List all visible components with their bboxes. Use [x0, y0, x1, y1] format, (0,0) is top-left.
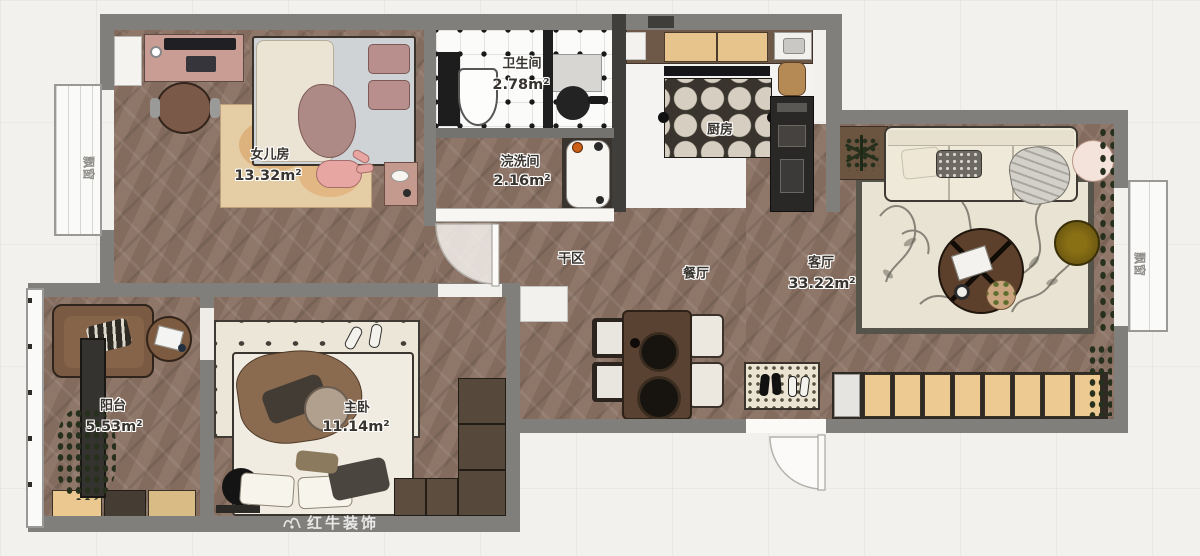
chair-cushion: [597, 322, 622, 354]
wash-basin: [556, 86, 590, 120]
kitchen-cabinet-doors: [664, 32, 768, 62]
floor-tray: [216, 505, 260, 513]
wall-bottom-right: [826, 419, 1128, 433]
room-label-living: 客厅: [808, 252, 834, 271]
table-item: [178, 344, 186, 352]
chair-armrest: [210, 98, 220, 118]
room-label-dining: 餐厅: [683, 263, 709, 282]
room-area-living: 33.22m²: [788, 276, 855, 292]
sink-basin: [783, 38, 805, 54]
mug: [150, 46, 162, 58]
wall-left-lower: [100, 230, 114, 297]
storage-cabinet: [924, 374, 951, 417]
laundry-sliding-door: [436, 208, 614, 222]
wall-top: [100, 14, 842, 30]
cabinet-divider: [716, 33, 718, 61]
chair-armrest: [150, 98, 160, 118]
bathroom-vanity: [438, 52, 460, 126]
dining-chair-right: [688, 362, 724, 408]
room-label-daughter: 女儿房: [250, 144, 289, 163]
wall-bottom-left: [28, 516, 520, 532]
balcony-door-opening: [200, 308, 214, 360]
wall-top-vent: [648, 16, 674, 28]
nightstand-item: [391, 170, 409, 182]
room-label-laundry: 浣洗间: [500, 151, 539, 170]
slipper: [788, 376, 797, 397]
bay-window-label-left: 飘窗: [81, 156, 98, 180]
lumbar-pillow: [295, 450, 339, 474]
wall-daughter-corridor: [424, 14, 436, 226]
wall-left-upper: [100, 14, 114, 90]
room-label-kitchen: 厨房: [707, 119, 733, 138]
tray: [986, 280, 1016, 310]
room-area-laundry: 2.16m²: [493, 173, 550, 189]
wall-bath-laundry: [436, 128, 614, 138]
wall-right-lower: [1114, 326, 1128, 433]
pillow: [368, 80, 410, 110]
sofa-pillow-patterned: [936, 150, 982, 178]
pouf: [1054, 220, 1100, 266]
plant: [845, 137, 879, 171]
rug-handle: [658, 112, 669, 123]
balcony-cabinet-light: [148, 490, 196, 518]
shoe: [771, 373, 782, 396]
fridge-coffee-bar: [770, 96, 814, 212]
pillow: [368, 44, 410, 74]
cabinet-divider: [425, 479, 427, 515]
low-cabinet: [394, 478, 458, 516]
storage-cabinet: [1044, 374, 1071, 417]
daughter-shelf: [114, 36, 142, 86]
slipper: [799, 376, 810, 398]
storage-cabinet: [894, 374, 921, 417]
coffee-table: [938, 228, 1024, 314]
daughter-room-door: [434, 222, 502, 290]
range-hood: [664, 66, 770, 76]
wardrobe: [458, 378, 506, 516]
hall-cabinet: [520, 286, 568, 322]
desk-chair: [156, 82, 212, 134]
balcony-window-strip: [26, 288, 44, 528]
cutting-board: [778, 62, 806, 96]
corner-plant: [1088, 344, 1112, 416]
washer-button: [596, 196, 604, 204]
monitor: [164, 38, 236, 50]
wall-right-upper: [1114, 124, 1128, 188]
wall-bottom-mid: [506, 419, 746, 433]
balcony-table: [146, 316, 192, 362]
storage-cabinet: [1014, 374, 1041, 417]
doormat: [744, 362, 820, 410]
nightstand-item: [403, 189, 411, 197]
chair-cushion: [597, 366, 622, 398]
window-plants: [1098, 126, 1114, 332]
room-area-master: 11.14m²: [322, 419, 389, 435]
wall-kitchen-living-stub: [826, 124, 840, 212]
brand-watermark: 红牛装饰: [282, 512, 379, 533]
bar-item: [777, 103, 807, 112]
washer-button: [594, 142, 603, 151]
washer-knob: [572, 142, 583, 153]
dining-chair-left: [592, 362, 626, 402]
wall-living-top: [826, 110, 1128, 124]
nightstand: [384, 162, 418, 206]
keyboard: [186, 56, 216, 72]
utility-cabinet: [834, 374, 860, 417]
storage-cabinet: [984, 374, 1011, 417]
sofa-back: [888, 130, 1074, 146]
shoe: [759, 374, 770, 397]
plant-shelf: [834, 126, 888, 180]
wall-kitchen-right: [826, 14, 842, 124]
place-setting: [639, 332, 679, 372]
room-area-daughter: 13.32m²: [234, 168, 301, 184]
wall-bath-kitchen: [612, 14, 626, 212]
wardrobe-divider: [459, 469, 505, 471]
floor-plan: 女儿房 13.32m² 卫生间 2.78m² 浣洗间 2.16m² 厨房 干区 …: [0, 0, 1200, 556]
dining-table: [622, 310, 692, 420]
bay-window-label-right: 飘窗: [1132, 252, 1149, 276]
wall-master-right: [506, 283, 520, 530]
brand-watermark-text: 红牛装饰: [307, 512, 379, 533]
room-label-balcony: 阳台: [100, 395, 126, 414]
basin-faucet: [588, 96, 608, 104]
redbull-logo-icon: [282, 514, 302, 532]
wardrobe-divider: [459, 423, 505, 425]
place-setting: [637, 376, 681, 420]
storage-cabinet: [954, 374, 981, 417]
dining-chair-left: [592, 318, 626, 358]
bed-pillow: [239, 472, 295, 508]
room-label-master: 主卧: [344, 397, 370, 416]
table-item: [630, 338, 640, 348]
room-area-bathroom: 2.78m²: [492, 77, 549, 93]
kitchen-sink: [774, 32, 812, 60]
entry-door: [744, 431, 828, 493]
balcony-cabinet-dark: [104, 490, 146, 518]
bar-item: [778, 125, 806, 147]
cup: [954, 284, 970, 300]
room-label-dry-area: 干区: [558, 248, 584, 267]
room-area-balcony: 5.53m²: [85, 419, 142, 435]
bar-item: [780, 159, 804, 193]
storage-cabinet: [864, 374, 891, 417]
room-label-bathroom: 卫生间: [502, 53, 541, 72]
dining-chair-right: [688, 314, 724, 358]
window-frame-ticks: [28, 298, 32, 522]
bunny-plush: [316, 160, 362, 188]
